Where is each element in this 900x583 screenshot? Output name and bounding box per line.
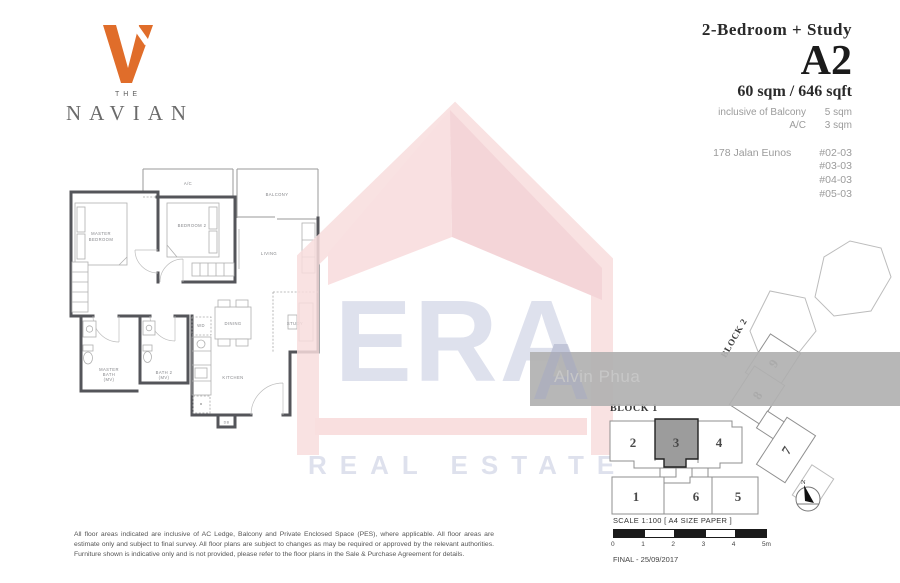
room-label-living: LIVING [261, 251, 277, 256]
room-label-study: STUDY [287, 321, 303, 326]
unit-2: 2 [630, 435, 637, 450]
era-bar [315, 418, 587, 435]
stack-unit: #02-03 [819, 147, 852, 161]
unit-code: A2 [702, 40, 852, 83]
room-label-master-1: MASTER [91, 231, 111, 236]
inclusive-value: 5 sqm [806, 106, 852, 120]
bedroom2-bed [167, 203, 219, 257]
inclusive-value: 3 sqm [806, 119, 852, 133]
logo-the: THE [56, 91, 196, 98]
scale-tick: 2 [671, 541, 675, 548]
compass-north-label: N [801, 479, 806, 486]
inclusive-label: inclusive of Balcony [718, 106, 806, 120]
unit-type: 2-Bedroom + Study [702, 20, 852, 40]
room-label-ac: A/C [184, 181, 192, 186]
inclusive-row: A/C 3 sqm [702, 119, 852, 133]
scale-tick: 1 [641, 541, 645, 548]
stack-unit: #03-03 [819, 160, 852, 174]
address-block: 178 Jalan Eunos #02-03 #03-03 #04-03 #05… [702, 147, 852, 202]
stack-units: #02-03 #03-03 #04-03 #05-03 [819, 147, 852, 202]
living-sofa [239, 223, 315, 273]
bath2-fixtures [143, 321, 155, 363]
scale-label: SCALE 1:100 [ A4 SIZE PAPER ] [613, 516, 732, 525]
room-label-dining: DINING [224, 321, 241, 326]
scale-tick: 3 [702, 541, 706, 548]
agent-watermark-band: A Alvin Phua [530, 352, 900, 406]
room-label-wd: WD [197, 323, 205, 328]
room-label-db: DB [224, 421, 230, 425]
stack-unit: #04-03 [819, 174, 852, 188]
room-label-mbath-3: (MV) [104, 377, 115, 382]
unit-header: 2-Bedroom + Study A2 60 sqm / 646 sqft i… [702, 20, 852, 201]
bedroom2-wardrobe [192, 263, 234, 276]
unit-5: 5 [735, 489, 742, 504]
unit-6: 6 [693, 489, 700, 504]
room-label-master-2: BEDROOM [89, 237, 114, 242]
agent-name-watermark: Alvin Phua [554, 367, 640, 387]
logo-name: NAVIAN [56, 101, 196, 126]
era-house-icon [295, 100, 625, 480]
room-label-kitchen: KITCHEN [222, 375, 243, 380]
kitchen-counter [192, 317, 211, 413]
block1-group: BLOCK 1 2 3 4 1 6 5 [610, 403, 758, 514]
disclaimer-text: All floor areas indicated are inclusive … [74, 530, 494, 561]
room-label-bath2-2: (MV) [159, 375, 170, 380]
navian-logo: THE NAVIAN [56, 22, 196, 126]
scale-tick: 5m [762, 541, 771, 548]
unit-4: 4 [716, 435, 723, 450]
navian-v-icon [95, 22, 157, 86]
unit-1: 1 [633, 489, 640, 504]
era-watermark: ERA REAL ESTATE [295, 100, 625, 480]
stack-unit: #05-03 [819, 188, 852, 202]
inclusive-label: A/C [789, 119, 806, 133]
real-estate-wordmark: REAL ESTATE [295, 450, 625, 481]
unit-area: 60 sqm / 646 sqft [702, 83, 852, 101]
street-address: 178 Jalan Eunos [713, 147, 791, 202]
floor-plan: A/C BALCONY MASTER BEDROOM BEDROOM 2 LIV… [55, 165, 320, 465]
floorplan-flyer-page: { "logo": { "the": "THE", "name": "NAVIA… [0, 0, 900, 583]
master-bath-fixtures [83, 321, 96, 364]
scale-ticks: 0 1 2 3 4 5m [611, 541, 771, 548]
master-wardrobe [72, 262, 88, 312]
inclusive-areas: inclusive of Balcony 5 sqm A/C 3 sqm [702, 106, 852, 133]
room-label-bedroom2: BEDROOM 2 [178, 223, 207, 228]
final-date-label: FINAL - 25/09/2017 [613, 555, 678, 564]
scale-bar [613, 529, 767, 538]
room-label-balcony: BALCONY [266, 192, 289, 197]
inclusive-row: inclusive of Balcony 5 sqm [702, 106, 852, 120]
scale-tick: 4 [732, 541, 736, 548]
scale-tick: 0 [611, 541, 615, 548]
unit-3: 3 [673, 435, 680, 450]
